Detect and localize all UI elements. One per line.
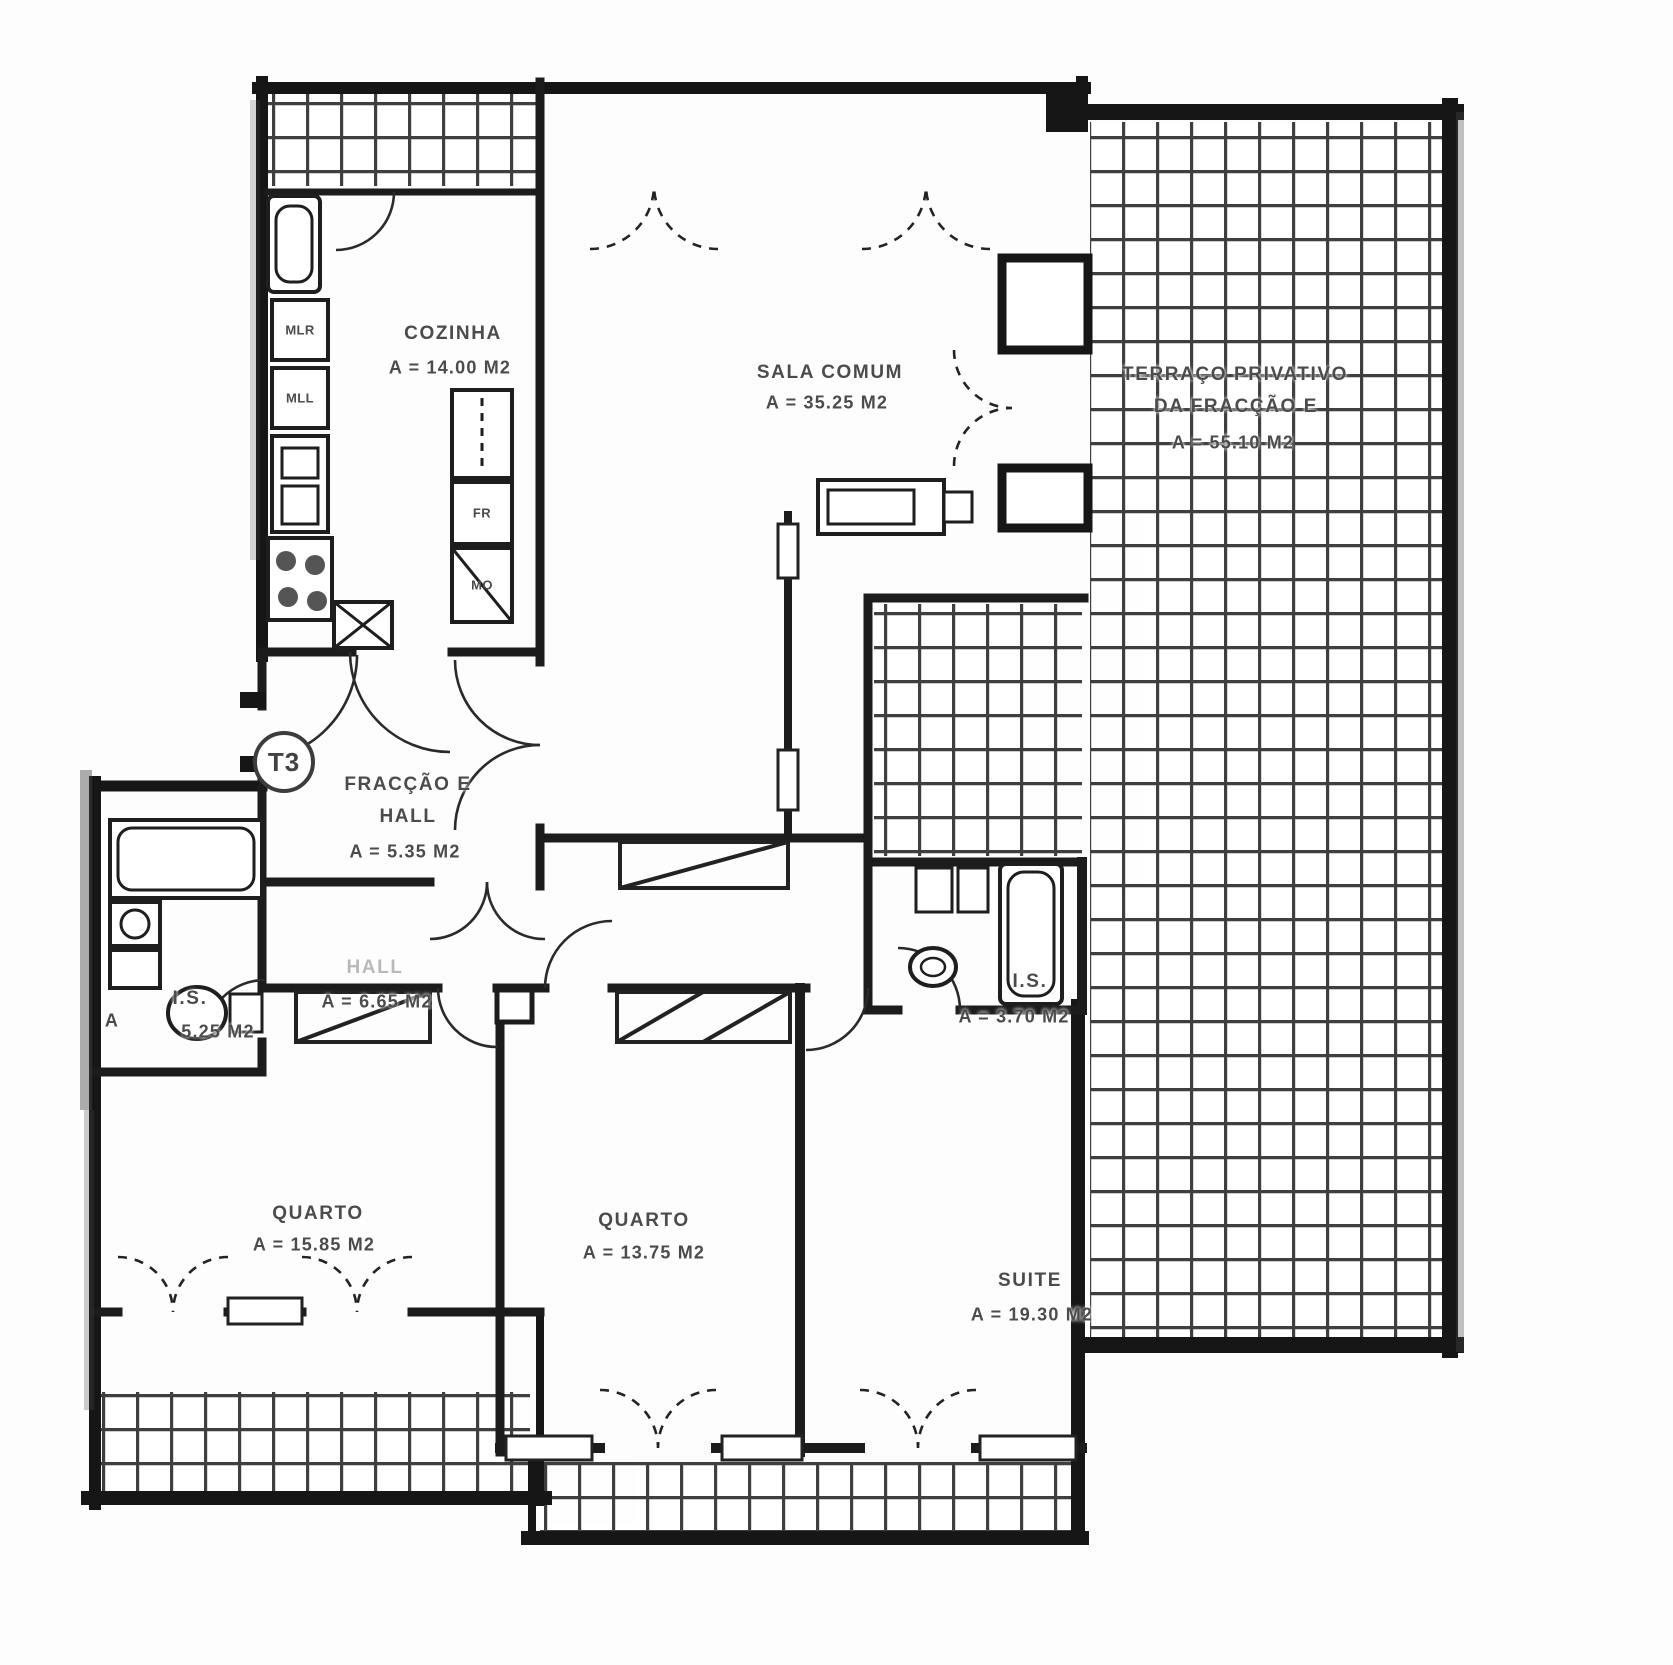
room-label-terraco-line1: TERRAÇO PRIVATIVO — [1122, 364, 1348, 386]
room-area-quarto2: A = 13.75 M2 — [583, 1243, 705, 1264]
room-label-quarto2: QUARTO — [598, 1210, 690, 1232]
room-label-sala-comum: SALA COMUM — [757, 362, 903, 384]
room-label-terraco-line2: DA FRACÇÃO E — [1154, 396, 1318, 418]
bidet — [916, 868, 952, 912]
appliance-label-fr: FR — [473, 506, 491, 521]
floor-plan-page: T3 COZINHA A = 14.00 M2 SALA COMUM A = 3… — [0, 0, 1673, 1665]
room-area-sala-comum: A = 35.25 M2 — [766, 393, 888, 414]
room-label-quarto1: QUARTO — [272, 1203, 364, 1225]
room-label-fraccao-hall: HALL — [379, 806, 436, 828]
appliance-label-mlr: MLR — [285, 323, 314, 338]
room-area-suite: A = 19.30 M2 — [971, 1305, 1093, 1326]
room-label-hall: HALL — [346, 957, 403, 979]
room-area-is1: 5.25 M2 — [181, 1022, 254, 1043]
room-area-fraccao-hall: A = 5.35 M2 — [349, 842, 460, 863]
floor-plan-drawing — [0, 0, 1673, 1665]
sala-sideboard — [818, 480, 972, 534]
room-area-terraco: A = 55.10 M2 — [1172, 433, 1294, 454]
room-label-is2: I.S. — [1013, 971, 1048, 993]
appliance-label-mll: MLL — [286, 391, 314, 406]
room-label-cozinha: COZINHA — [404, 323, 502, 345]
room-area-quarto1: A = 15.85 M2 — [253, 1235, 375, 1256]
room-area-hall: A = 6.65 M2 — [321, 992, 432, 1013]
room-area-is1-prefix: A — [105, 1011, 119, 1032]
unit-type-badge: T3 — [253, 731, 315, 793]
room-label-is1: I.S. — [173, 988, 208, 1010]
room-area-cozinha: A = 14.00 M2 — [389, 358, 511, 379]
terrace-tiles — [874, 122, 1442, 1338]
room-label-suite: SUITE — [998, 1270, 1062, 1292]
appliance-label-mo: MO — [471, 578, 493, 593]
room-label-fraccao: FRACÇÃO E — [344, 774, 471, 796]
room-area-is2: A = 3.70 M2 — [958, 1007, 1069, 1028]
